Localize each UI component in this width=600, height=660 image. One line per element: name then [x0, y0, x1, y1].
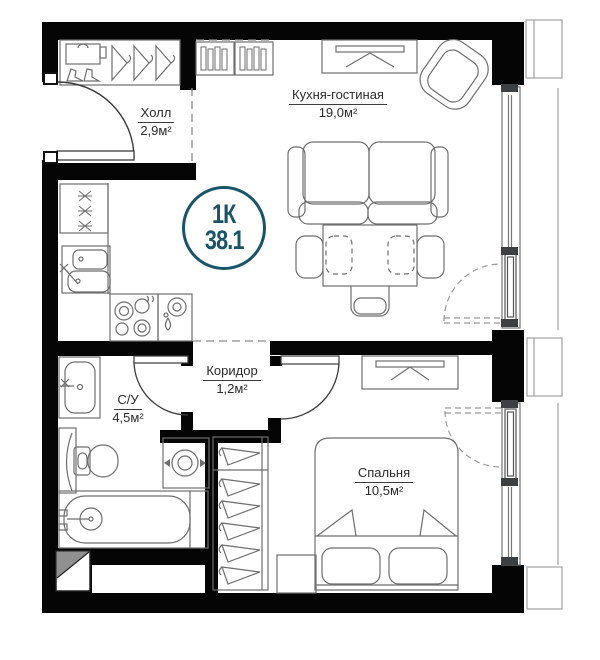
second-sink-icon: [158, 294, 192, 341]
hanger-icon: [112, 46, 131, 80]
room-name: Коридор: [203, 364, 260, 381]
room-label-hall: Холл 2,9м²: [114, 106, 198, 139]
bathtub-icon: [59, 491, 208, 548]
dining-set: [296, 225, 444, 316]
hanger-icon: [219, 523, 260, 540]
toilet-icon: [74, 445, 118, 477]
bedroom-door: [281, 356, 339, 419]
room-area: 2,9м²: [114, 124, 198, 139]
room-label-corridor: Коридор 1,2м²: [190, 364, 274, 397]
apartment-area: 38.1: [205, 228, 244, 254]
hall-closet: [60, 40, 180, 85]
washing-machine-icon: [163, 438, 209, 488]
room-name: Спальня: [355, 466, 413, 483]
room-label-kitchen-living: Кухня-гостиная 19,0м²: [278, 88, 398, 121]
hanger-icon: [219, 501, 260, 518]
bed: [315, 438, 458, 590]
fridge-icon: [60, 184, 108, 233]
floor-plan: Холл 2,9м² Кухня-гостиная 19,0м² Коридор…: [0, 0, 600, 660]
stove-icon: [110, 294, 158, 341]
hanger-icon: [219, 567, 260, 584]
dresser-tv: [362, 356, 458, 389]
tv-stand: [322, 40, 417, 73]
room-name: Кухня-гостиная: [289, 88, 387, 105]
hanger-icon: [219, 545, 260, 562]
kitchen-sink-icon: [60, 246, 110, 293]
sofa: [288, 142, 448, 224]
vent-shaft-icon: [56, 551, 90, 591]
balcony-door-swing-living: [444, 264, 501, 323]
room-label-bathroom: С/У 4,5м²: [96, 393, 160, 426]
apartment-type-badge: 1К 38.1: [182, 186, 266, 270]
room-name: Холл: [138, 106, 175, 123]
room-area: 4,5м²: [96, 411, 160, 426]
kitchen-cabinets: [196, 42, 273, 75]
boot-icon: [84, 69, 99, 81]
armchair: [413, 33, 494, 116]
window-living-room: [502, 87, 520, 328]
room-area: 10,5м²: [342, 484, 426, 499]
hanger-icon: [134, 46, 153, 80]
room-area: 19,0м²: [278, 106, 398, 121]
hanger-icon: [156, 46, 175, 80]
hanger-icon: [219, 479, 260, 496]
room-name: С/У: [114, 393, 141, 410]
balcony-door-swing-bedroom: [445, 408, 501, 467]
room-area: 1,2м²: [190, 382, 274, 397]
bedside-table: [277, 555, 316, 593]
room-label-bedroom: Спальня 10,5м²: [342, 466, 426, 499]
facade-elements: [526, 20, 562, 609]
hanger-icon: [219, 448, 260, 465]
washbasin-icon: [59, 357, 100, 418]
boot-icon: [67, 69, 83, 81]
